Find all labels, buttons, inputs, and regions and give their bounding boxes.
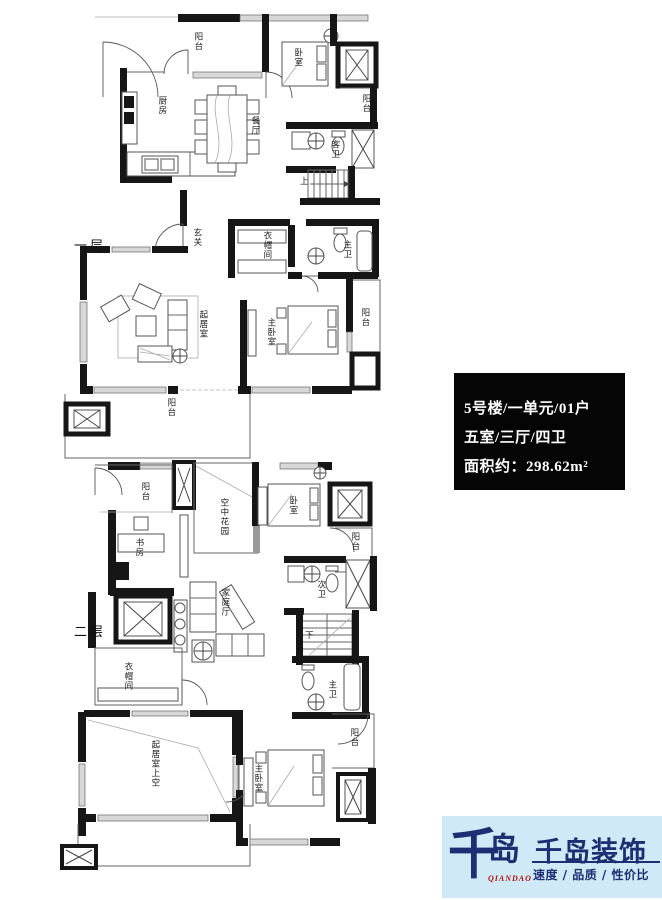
logo-mark-char2: 岛 [488, 824, 520, 870]
unit-area-line: 面积约：298.62m² [464, 453, 625, 482]
room-label-kitchen: 厨房 [157, 96, 166, 115]
room-label-living-void: 起居室上空 [150, 740, 159, 788]
ceiling-fan-icon [173, 349, 187, 363]
unit-building-line: 5号楼/一单元/01户 [464, 395, 625, 424]
room-label-bedroom2: 卧室 [288, 496, 297, 515]
toilet-icon [326, 566, 338, 592]
stairs-down-label: 下 [305, 632, 314, 641]
room-label-master-bath: 主卫 [342, 240, 351, 259]
stairs-up-label: 上 [300, 178, 309, 187]
unit-rooms-line: 五室/三厅/四卫 [464, 424, 625, 453]
floor2-name-label: 二层 [74, 626, 106, 640]
washbasin-icon [292, 132, 324, 149]
room-label-entry: 玄关 [192, 228, 201, 247]
bathtub-icon [357, 231, 372, 271]
room-label-balcony-tr: 阳台 [350, 532, 359, 551]
ceiling-fan-icon [314, 467, 326, 479]
room-label-balcony-right: 阳台 [361, 94, 370, 113]
shaft-icon [174, 462, 194, 508]
toilet-icon [302, 665, 314, 690]
room-label-living: 起居室 [198, 310, 207, 339]
kitchen-appliances-icon [122, 92, 137, 144]
bed-icon [282, 42, 328, 86]
logo-title: 千岛装饰 [535, 830, 647, 869]
bathtub-icon [344, 664, 360, 710]
washbasin-icon [308, 248, 324, 264]
floor1-name-label: 一层 [74, 240, 106, 254]
elevator-icon [116, 596, 170, 642]
room-label-dining: 餐厅 [250, 116, 259, 135]
room-label-balcony-right2: 阳台 [360, 308, 369, 327]
bed-icon [256, 750, 324, 806]
room-label-master-bedroom2: 主卧室 [253, 764, 262, 793]
logo-divider [532, 861, 660, 863]
shaft-icon [62, 846, 96, 868]
room-label-family-hall: 家庭厅 [220, 588, 229, 617]
logo-caption: QIANDAO [488, 874, 532, 883]
shaft-icon [352, 354, 378, 388]
elevator-icon [66, 404, 108, 434]
room-label-sky-garden: 空中花园 [219, 498, 228, 536]
room-label-balcony-br: 阳台 [349, 728, 358, 747]
elevator-icon [338, 44, 376, 86]
room-label-cloakroom2: 衣帽间 [123, 662, 132, 691]
unit-info-box: 5号楼/一单元/01户 五室/三厅/四卫 面积约：298.62m² [454, 373, 625, 490]
company-logo: 千 岛 QIANDAO 千岛装饰 速度 / 品质 / 性价比 [442, 816, 662, 898]
room-label-bedroom: 卧室 [293, 48, 302, 67]
bed-icon [277, 306, 338, 354]
room-label-guest-bath: 客卫 [330, 140, 339, 159]
elevator-icon [330, 484, 370, 524]
room-label-balcony-top: 阳台 [193, 32, 202, 51]
floor1-plan [65, 14, 380, 458]
room-label-master-bath2: 主卫 [327, 680, 336, 699]
room-label-cloakroom: 衣帽间 [262, 231, 271, 260]
floorplan-page: 一层 阳台 卧室 厨房 餐厅 阳台 客卫 上 玄关 衣帽间 主卫 起居室 主卧室… [0, 0, 662, 900]
logo-tagline: 速度 / 品质 / 性价比 [533, 866, 649, 883]
wardrobe-icon [346, 560, 370, 608]
washbasin-icon [308, 694, 324, 710]
room-label-second-bath: 次卫 [316, 580, 325, 599]
elevator-icon [338, 774, 368, 820]
stairs-up-icon [308, 170, 350, 198]
room-label-master-bedroom: 主卧室 [266, 318, 275, 347]
logo-mark-icon: 千 岛 [448, 818, 532, 876]
room-label-balcony-bottom: 阳台 [166, 398, 175, 417]
room-label-study: 书房 [134, 538, 143, 557]
room-label-balcony-tl: 阳台 [140, 482, 149, 501]
